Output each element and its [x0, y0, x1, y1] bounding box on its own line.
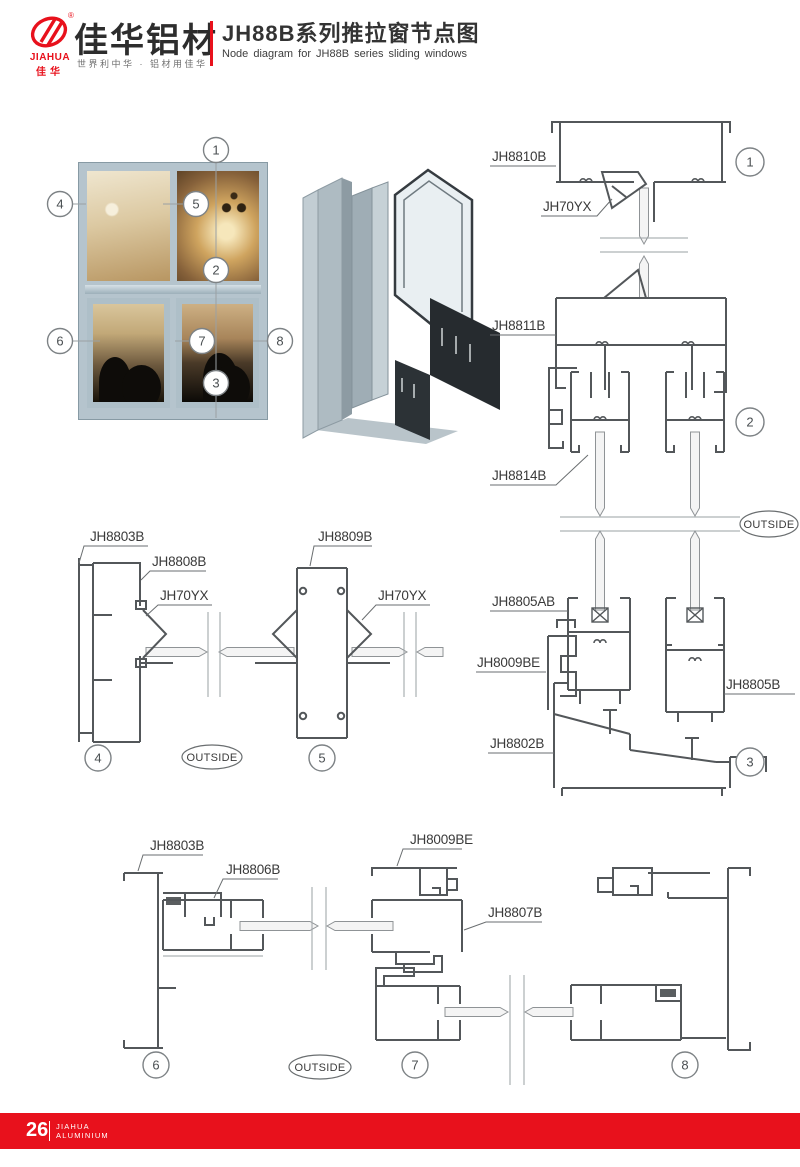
- callout-2: 2: [204, 258, 229, 283]
- svg-text:JH8805B: JH8805B: [726, 677, 780, 692]
- callout-1: 1: [204, 138, 229, 163]
- label-jh8814b: JH8814B: [490, 455, 588, 485]
- label-jh8803b-mid: JH8803B: [79, 529, 148, 563]
- overview-callouts: 1 2 3 4 5 6 7 8: [48, 138, 293, 419]
- svg-text:7: 7: [198, 334, 205, 349]
- callout-4: 4: [48, 192, 73, 217]
- diagram-canvas: 1 2 3 4 5 6 7 8: [0, 0, 800, 1167]
- svg-text:JH8809B: JH8809B: [318, 529, 372, 544]
- svg-text:4: 4: [56, 197, 63, 212]
- svg-text:5: 5: [192, 197, 199, 212]
- svg-text:JH8802B: JH8802B: [490, 736, 544, 751]
- svg-text:6: 6: [56, 334, 63, 349]
- svg-text:OUTSIDE: OUTSIDE: [295, 1062, 346, 1074]
- section-callout-4: 4: [85, 745, 111, 771]
- svg-text:JH8009BE: JH8009BE: [477, 655, 540, 670]
- svg-text:JH8810B: JH8810B: [492, 149, 546, 164]
- svg-text:2: 2: [746, 415, 753, 430]
- label-jh70yx-b: JH70YX: [362, 588, 430, 620]
- svg-text:8: 8: [681, 1058, 688, 1073]
- label-jh8806b: JH8806B: [214, 862, 280, 898]
- svg-text:4: 4: [94, 751, 101, 766]
- svg-text:8: 8: [276, 334, 283, 349]
- footer-bar: [0, 1113, 800, 1149]
- vertical-section-drawing: JH8810B JH70YX JH8811B JH8814B JH8805AB …: [476, 122, 798, 796]
- svg-text:JH70YX: JH70YX: [543, 199, 592, 214]
- svg-text:JH70YX: JH70YX: [378, 588, 427, 603]
- callout-5: 5: [184, 192, 209, 217]
- section-callout-6: 6: [143, 1052, 169, 1078]
- horizontal-section-45-drawing: JH8803B JH8808B JH70YX JH8809B JH70YX OU…: [79, 529, 443, 771]
- label-jh8810b: JH8810B: [490, 149, 556, 166]
- svg-text:3: 3: [746, 755, 753, 770]
- label-jh8805ab: JH8805AB: [490, 594, 568, 611]
- label-jh8809b: JH8809B: [310, 529, 372, 566]
- callout-8: 8: [268, 329, 293, 354]
- svg-text:JH8803B: JH8803B: [150, 838, 204, 853]
- svg-text:1: 1: [746, 155, 753, 170]
- footer-divider: [49, 1121, 50, 1141]
- callout-6: 6: [48, 329, 73, 354]
- horizontal-section-678-drawing: JH8803B JH8806B JH8009BE JH8807B OUTSIDE…: [124, 832, 750, 1085]
- label-jh70yx: JH70YX: [541, 199, 612, 216]
- svg-text:JH8807B: JH8807B: [488, 905, 542, 920]
- label-jh8009be: JH8009BE: [476, 655, 546, 672]
- label-jh8802b: JH8802B: [488, 736, 554, 753]
- svg-text:1: 1: [212, 143, 219, 158]
- label-jh8009be-bottom: JH8009BE: [397, 832, 473, 866]
- svg-text:JH8814B: JH8814B: [492, 468, 546, 483]
- svg-text:2: 2: [212, 263, 219, 278]
- svg-text:JH8009BE: JH8009BE: [410, 832, 473, 847]
- callout-7: 7: [190, 329, 215, 354]
- svg-text:JH8805AB: JH8805AB: [492, 594, 555, 609]
- section-callout-3: 3: [736, 748, 764, 776]
- footer-brand-line1: JIAHUA: [56, 1122, 109, 1131]
- svg-text:JH70YX: JH70YX: [160, 588, 209, 603]
- section-callout-2: 2: [736, 408, 764, 436]
- callout-3: 3: [204, 371, 229, 396]
- page-number: 26: [26, 1119, 48, 1142]
- outside-label-mid: OUTSIDE: [182, 745, 242, 769]
- label-jh8811b: JH8811B: [490, 318, 556, 335]
- section-callout-5: 5: [309, 745, 335, 771]
- svg-text:5: 5: [318, 751, 325, 766]
- svg-text:6: 6: [152, 1058, 159, 1073]
- label-jh8803b-bottom: JH8803B: [138, 838, 204, 871]
- svg-text:JH8806B: JH8806B: [226, 862, 280, 877]
- section-callout-1: 1: [736, 148, 764, 176]
- section-callout-7: 7: [402, 1052, 428, 1078]
- svg-text:JH8803B: JH8803B: [90, 529, 144, 544]
- svg-text:JH8811B: JH8811B: [492, 318, 545, 333]
- label-jh70yx-a: JH70YX: [146, 588, 212, 616]
- svg-text:OUTSIDE: OUTSIDE: [744, 519, 795, 531]
- footer-brand: JIAHUA ALUMINIUM: [56, 1122, 109, 1140]
- outside-label-right: OUTSIDE: [740, 511, 798, 537]
- svg-text:7: 7: [411, 1058, 418, 1073]
- label-jh8808b: JH8808B: [141, 554, 206, 580]
- svg-text:3: 3: [212, 376, 219, 391]
- footer-brand-line2: ALUMINIUM: [56, 1131, 109, 1140]
- svg-text:JH8808B: JH8808B: [152, 554, 206, 569]
- outside-label-bottom: OUTSIDE: [289, 1055, 351, 1079]
- section-callout-8: 8: [672, 1052, 698, 1078]
- label-jh8805b: JH8805B: [724, 677, 795, 694]
- svg-text:OUTSIDE: OUTSIDE: [187, 752, 238, 764]
- label-jh8807b: JH8807B: [464, 905, 542, 930]
